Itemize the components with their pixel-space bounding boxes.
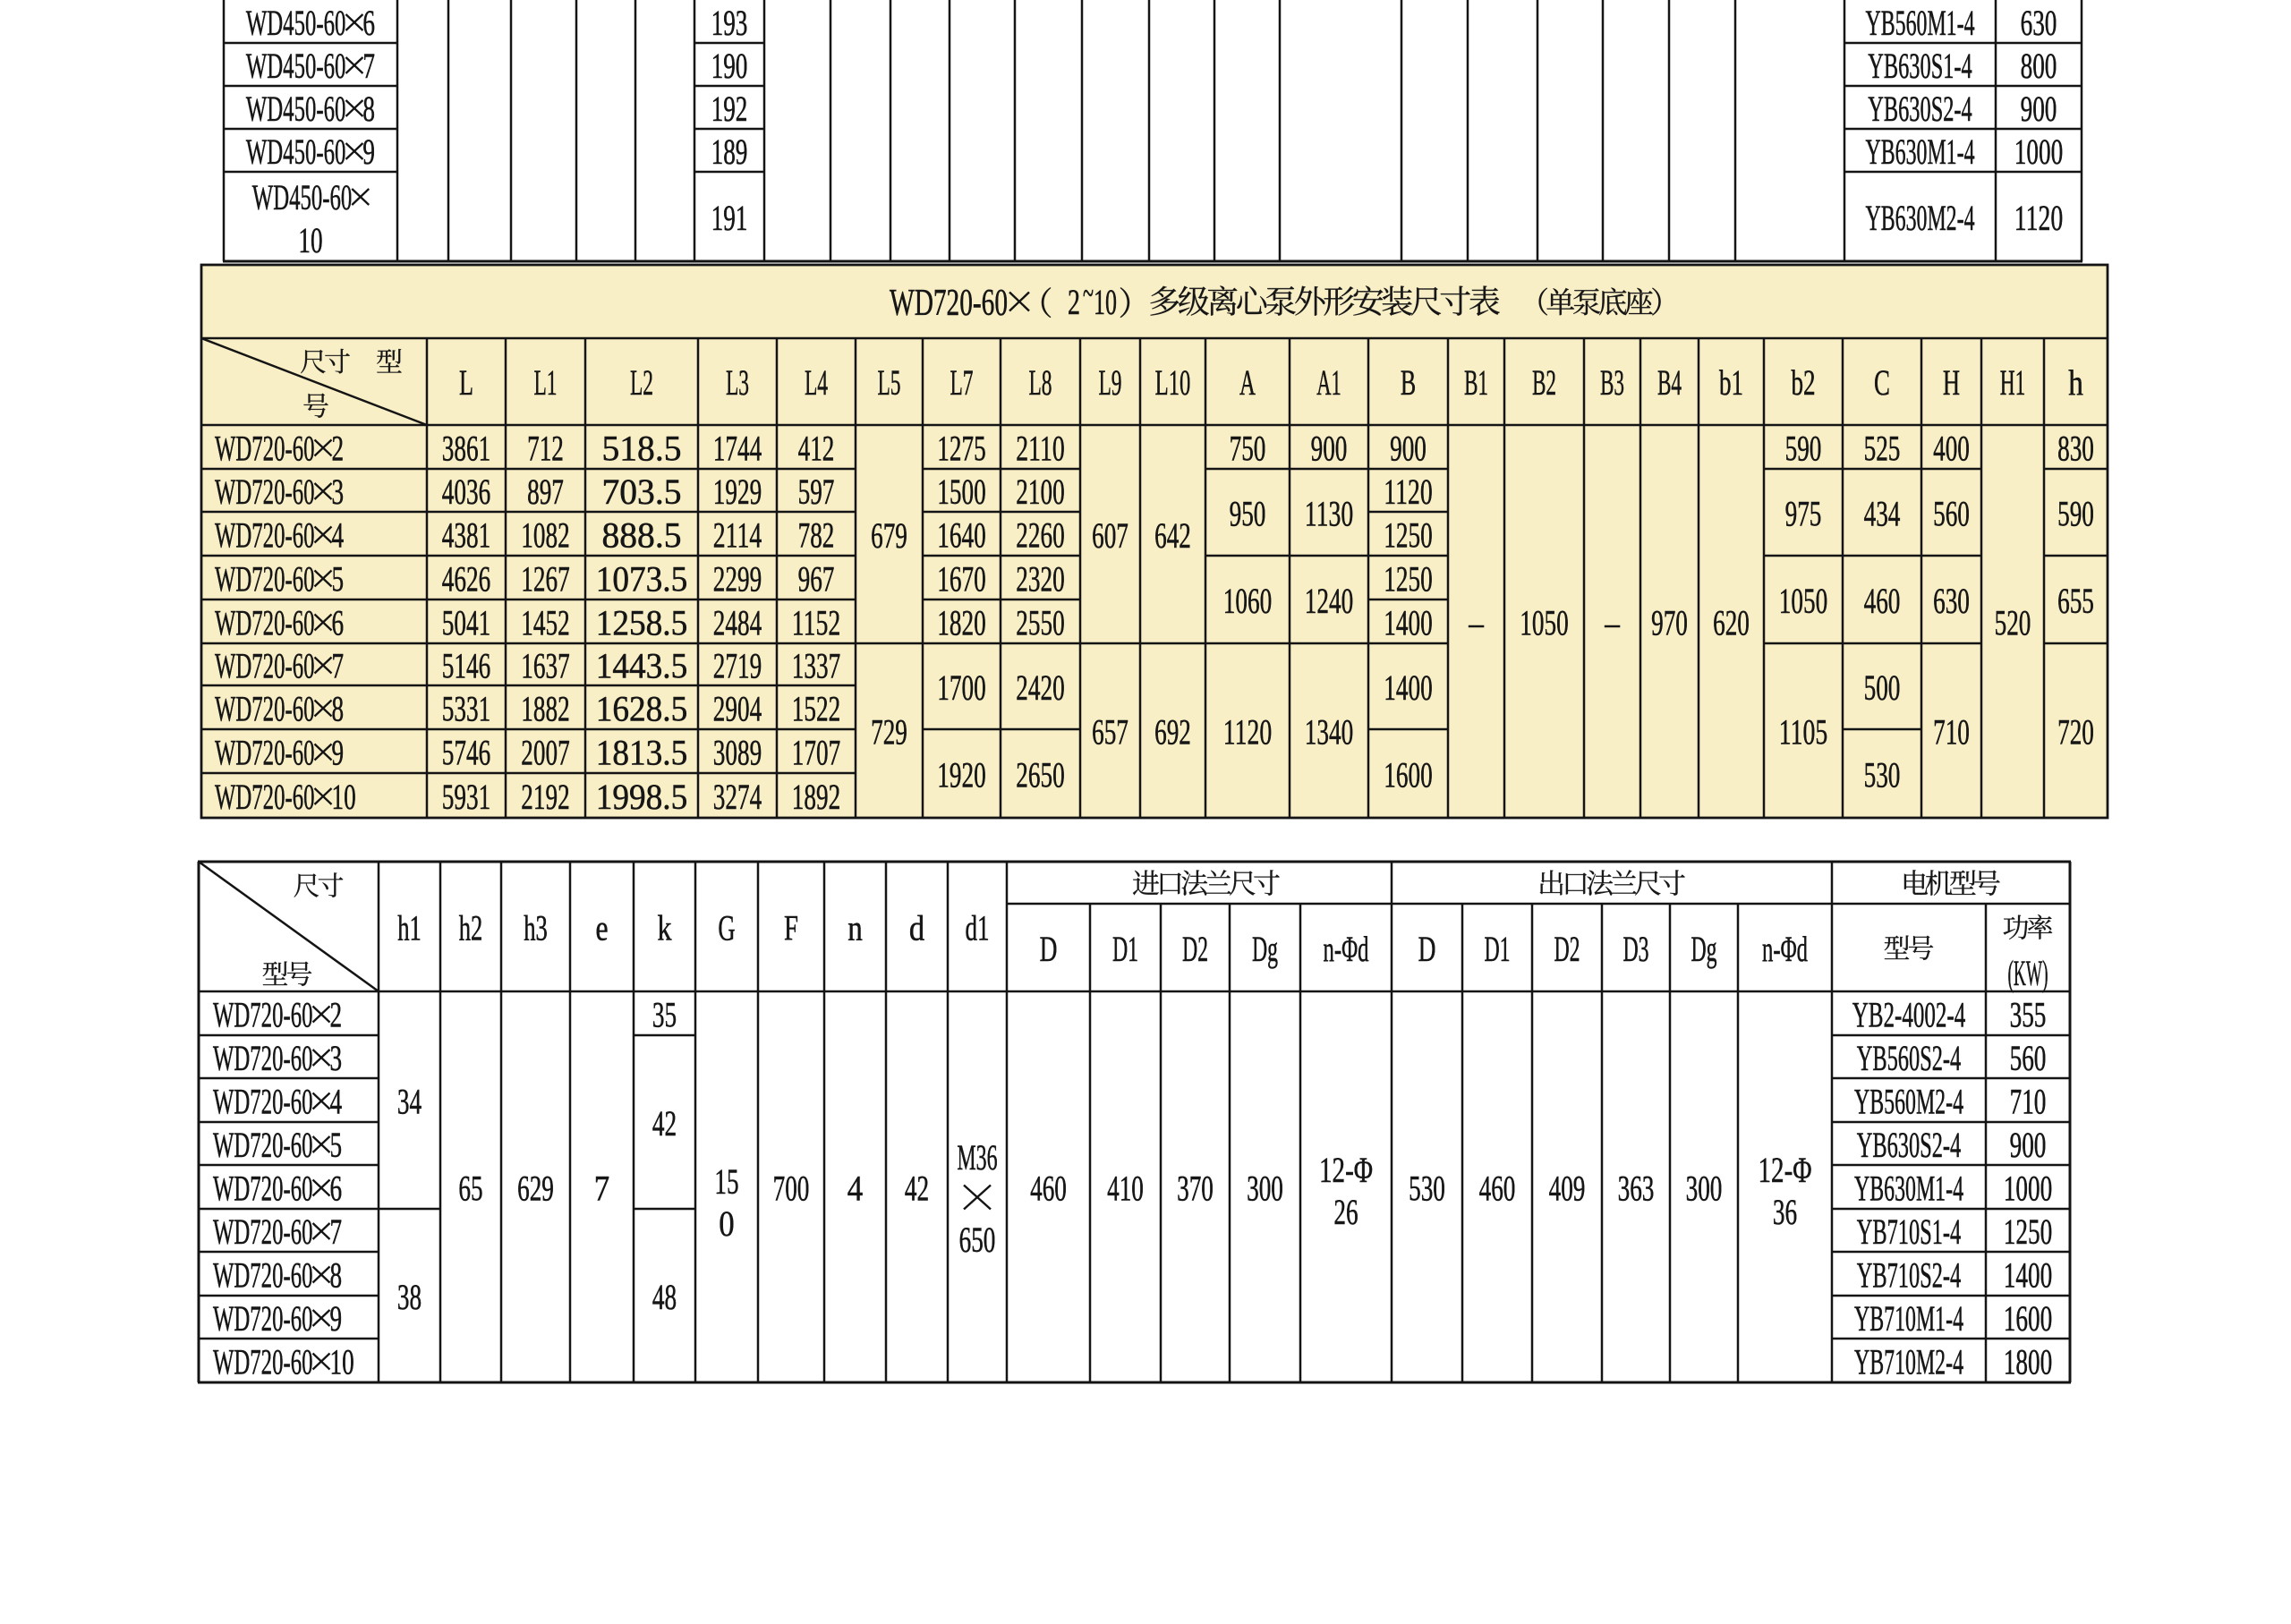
svg-text:4626: 4626 bbox=[442, 559, 490, 599]
svg-text:1813.5: 1813.5 bbox=[596, 733, 688, 773]
svg-text:720: 720 bbox=[2057, 712, 2094, 752]
svg-text:2: 2 bbox=[330, 995, 343, 1035]
svg-text:5041: 5041 bbox=[442, 603, 490, 643]
svg-text:900: 900 bbox=[2021, 89, 2057, 129]
svg-text:193: 193 bbox=[711, 3, 748, 43]
svg-text:b1: b1 bbox=[1719, 362, 1743, 403]
svg-text:1250: 1250 bbox=[1384, 515, 1432, 556]
svg-text:700: 700 bbox=[773, 1169, 810, 1209]
svg-text:1820: 1820 bbox=[937, 603, 985, 643]
svg-text:D2: D2 bbox=[1182, 929, 1208, 969]
svg-text:B4: B4 bbox=[1657, 362, 1682, 403]
svg-text:2: 2 bbox=[332, 429, 345, 469]
svg-text:YB710M1-4: YB710M1-4 bbox=[1854, 1298, 1963, 1339]
svg-text:655: 655 bbox=[2057, 581, 2094, 621]
svg-text:657: 657 bbox=[1092, 712, 1128, 752]
svg-text:1275: 1275 bbox=[937, 429, 985, 469]
svg-text:950: 950 bbox=[1230, 494, 1266, 534]
svg-text:4: 4 bbox=[330, 1082, 343, 1122]
svg-text:D1: D1 bbox=[1484, 929, 1510, 969]
svg-text:n: n bbox=[847, 908, 863, 948]
svg-text:M36: M36 bbox=[957, 1137, 997, 1178]
svg-text:L9: L9 bbox=[1098, 362, 1121, 403]
svg-text:e: e bbox=[595, 908, 608, 948]
svg-text:2484: 2484 bbox=[713, 603, 762, 643]
svg-text:300: 300 bbox=[1247, 1169, 1283, 1209]
svg-text:12-Φ: 12-Φ bbox=[1319, 1150, 1373, 1190]
svg-text:3089: 3089 bbox=[713, 733, 762, 773]
svg-text:1800: 1800 bbox=[2004, 1342, 2052, 1382]
svg-text:400: 400 bbox=[1933, 429, 1970, 469]
svg-text:YB560S2-4: YB560S2-4 bbox=[1857, 1038, 1962, 1078]
svg-text:WD720-60: WD720-60 bbox=[213, 995, 313, 1035]
svg-text:607: 607 bbox=[1092, 515, 1128, 556]
svg-text:650: 650 bbox=[959, 1220, 996, 1260]
svg-text:1073.5: 1073.5 bbox=[596, 559, 688, 599]
svg-text:15: 15 bbox=[714, 1161, 738, 1202]
svg-text:L: L bbox=[459, 362, 473, 403]
svg-text:Dg: Dg bbox=[1691, 929, 1717, 969]
svg-text:WD720-60: WD720-60 bbox=[213, 1298, 313, 1339]
svg-text:L4: L4 bbox=[805, 362, 828, 403]
svg-text:191: 191 bbox=[711, 198, 748, 238]
svg-text:460: 460 bbox=[1030, 1169, 1067, 1209]
svg-text:1400: 1400 bbox=[2004, 1255, 2052, 1296]
svg-text:370: 370 bbox=[1177, 1169, 1214, 1209]
svg-text:1443.5: 1443.5 bbox=[596, 646, 688, 686]
svg-text:1120: 1120 bbox=[2014, 198, 2063, 238]
svg-text:k: k bbox=[658, 908, 672, 948]
svg-text:710: 710 bbox=[1933, 712, 1970, 752]
svg-text:897: 897 bbox=[527, 472, 564, 512]
svg-text:1744: 1744 bbox=[713, 429, 762, 469]
svg-text:460: 460 bbox=[1864, 581, 1901, 621]
svg-text:42: 42 bbox=[905, 1169, 929, 1209]
svg-text:1250: 1250 bbox=[2004, 1212, 2052, 1252]
svg-text:0: 0 bbox=[719, 1203, 734, 1244]
svg-text:409: 409 bbox=[1549, 1169, 1586, 1209]
svg-text:WD720-60: WD720-60 bbox=[213, 1169, 313, 1209]
svg-text:967: 967 bbox=[798, 559, 835, 599]
svg-text:2320: 2320 bbox=[1016, 559, 1064, 599]
svg-text:1400: 1400 bbox=[1384, 603, 1432, 643]
svg-text:7: 7 bbox=[362, 46, 375, 86]
svg-text:YB710S1-4: YB710S1-4 bbox=[1857, 1212, 1962, 1252]
svg-text:2114: 2114 bbox=[713, 515, 762, 556]
svg-text:h1: h1 bbox=[397, 908, 422, 948]
svg-text:WD720-60: WD720-60 bbox=[213, 1082, 313, 1122]
svg-text:900: 900 bbox=[2010, 1125, 2047, 1165]
svg-text:B3: B3 bbox=[1600, 362, 1624, 403]
svg-text:WD720-60: WD720-60 bbox=[215, 689, 315, 729]
svg-text:65: 65 bbox=[458, 1169, 482, 1209]
svg-text:525: 525 bbox=[1864, 429, 1901, 469]
svg-text:888.5: 888.5 bbox=[602, 515, 682, 556]
svg-text:3861: 3861 bbox=[442, 429, 490, 469]
svg-text:YB630S1-4: YB630S1-4 bbox=[1868, 46, 1972, 86]
svg-text:3: 3 bbox=[332, 472, 345, 512]
svg-text:L10: L10 bbox=[1155, 362, 1191, 403]
svg-text:YB630M2-4: YB630M2-4 bbox=[1866, 198, 1975, 238]
svg-text:YB2-4002-4: YB2-4002-4 bbox=[1852, 995, 1966, 1035]
svg-text:1628.5: 1628.5 bbox=[596, 689, 688, 729]
svg-text:597: 597 bbox=[798, 472, 835, 512]
svg-text:900: 900 bbox=[1390, 429, 1427, 469]
svg-text:WD720-60: WD720-60 bbox=[890, 283, 1008, 324]
svg-text:YB560M2-4: YB560M2-4 bbox=[1854, 1082, 1963, 1122]
svg-text:WD720-60: WD720-60 bbox=[213, 1125, 313, 1165]
svg-text:YB630M1-4: YB630M1-4 bbox=[1866, 132, 1975, 172]
svg-text:1105: 1105 bbox=[1779, 712, 1827, 752]
svg-text:1400: 1400 bbox=[1384, 667, 1432, 708]
svg-text:4: 4 bbox=[847, 1169, 863, 1209]
svg-text:WD720-60: WD720-60 bbox=[215, 429, 315, 469]
svg-text:520: 520 bbox=[1995, 603, 2031, 643]
svg-text:1892: 1892 bbox=[792, 777, 840, 817]
svg-text:5331: 5331 bbox=[442, 689, 490, 729]
svg-text:C: C bbox=[1874, 362, 1890, 403]
svg-text:D2: D2 bbox=[1554, 929, 1580, 969]
svg-text:D1: D1 bbox=[1112, 929, 1138, 969]
svg-text:D3: D3 bbox=[1622, 929, 1648, 969]
svg-text:530: 530 bbox=[1864, 755, 1901, 795]
svg-text:1600: 1600 bbox=[1384, 755, 1432, 795]
svg-text:35: 35 bbox=[652, 995, 677, 1035]
svg-text:1120: 1120 bbox=[1223, 712, 1272, 752]
svg-text:703.5: 703.5 bbox=[602, 472, 682, 512]
svg-text:WD720-60: WD720-60 bbox=[213, 1255, 313, 1296]
svg-text:1050: 1050 bbox=[1779, 581, 1827, 621]
svg-text:WD720-60: WD720-60 bbox=[215, 559, 315, 599]
svg-text:YB630S2-4: YB630S2-4 bbox=[1857, 1125, 1962, 1165]
svg-text:B2: B2 bbox=[1532, 362, 1556, 403]
svg-text:1267: 1267 bbox=[521, 559, 569, 599]
svg-text:729: 729 bbox=[871, 712, 907, 752]
svg-text:42: 42 bbox=[652, 1103, 677, 1144]
svg-text:300: 300 bbox=[1686, 1169, 1723, 1209]
svg-text:d: d bbox=[909, 908, 924, 948]
svg-text:b2: b2 bbox=[1791, 362, 1815, 403]
svg-text:D: D bbox=[1418, 929, 1436, 969]
svg-text:h2: h2 bbox=[459, 908, 483, 948]
svg-text:L8: L8 bbox=[1028, 362, 1052, 403]
svg-text:630: 630 bbox=[2021, 3, 2057, 43]
svg-text:1640: 1640 bbox=[937, 515, 985, 556]
svg-text:560: 560 bbox=[1933, 494, 1970, 534]
svg-text:A: A bbox=[1239, 362, 1256, 403]
svg-text:4036: 4036 bbox=[442, 472, 490, 512]
svg-text:WD720-60: WD720-60 bbox=[215, 777, 315, 817]
svg-text:9: 9 bbox=[330, 1298, 343, 1339]
svg-text:1050: 1050 bbox=[1520, 603, 1568, 643]
svg-text:9: 9 bbox=[332, 733, 345, 773]
svg-text:692: 692 bbox=[1154, 712, 1191, 752]
svg-text:750: 750 bbox=[1230, 429, 1266, 469]
svg-text:34: 34 bbox=[397, 1082, 422, 1122]
svg-text:8: 8 bbox=[332, 689, 345, 729]
svg-text:2904: 2904 bbox=[713, 689, 762, 729]
svg-text:1920: 1920 bbox=[937, 755, 985, 795]
svg-text:1060: 1060 bbox=[1223, 581, 1272, 621]
svg-text:5931: 5931 bbox=[442, 777, 490, 817]
svg-text:4: 4 bbox=[332, 515, 345, 556]
svg-text:590: 590 bbox=[1785, 429, 1822, 469]
svg-text:G: G bbox=[718, 908, 735, 948]
svg-text:n-Φd: n-Φd bbox=[1762, 929, 1808, 969]
svg-text:1250: 1250 bbox=[1384, 559, 1432, 599]
svg-text:B: B bbox=[1401, 362, 1416, 403]
svg-text:2: 2 bbox=[1068, 282, 1080, 322]
svg-text:h3: h3 bbox=[524, 908, 548, 948]
svg-text:D: D bbox=[1040, 929, 1058, 969]
svg-text:900: 900 bbox=[1311, 429, 1348, 469]
svg-text:7: 7 bbox=[332, 646, 345, 686]
svg-text:2719: 2719 bbox=[713, 646, 762, 686]
svg-text:2100: 2100 bbox=[1016, 472, 1064, 512]
svg-text:460: 460 bbox=[1479, 1169, 1516, 1209]
svg-text:5146: 5146 bbox=[442, 646, 490, 686]
svg-text:10: 10 bbox=[1094, 282, 1117, 322]
svg-text:5: 5 bbox=[332, 559, 345, 599]
svg-text:WD450-60: WD450-60 bbox=[246, 46, 346, 86]
svg-text:1929: 1929 bbox=[713, 472, 762, 512]
svg-text:6: 6 bbox=[330, 1169, 343, 1209]
svg-text:830: 830 bbox=[2057, 429, 2094, 469]
svg-text:2110: 2110 bbox=[1016, 429, 1064, 469]
svg-text:1700: 1700 bbox=[937, 667, 985, 708]
svg-text:26: 26 bbox=[1333, 1192, 1358, 1232]
svg-text:1000: 1000 bbox=[2014, 132, 2063, 172]
svg-text:190: 190 bbox=[711, 46, 748, 86]
svg-text:WD450-60: WD450-60 bbox=[246, 132, 346, 172]
svg-text:1130: 1130 bbox=[1305, 494, 1353, 534]
svg-text:2299: 2299 bbox=[713, 559, 762, 599]
svg-text:3: 3 bbox=[330, 1038, 343, 1078]
svg-text:4381: 4381 bbox=[442, 515, 490, 556]
svg-text:620: 620 bbox=[1713, 603, 1750, 643]
svg-text:679: 679 bbox=[871, 515, 907, 556]
svg-text:~: ~ bbox=[1083, 273, 1094, 313]
svg-text:WD720-60: WD720-60 bbox=[215, 603, 315, 643]
svg-text:WD720-60: WD720-60 bbox=[213, 1342, 313, 1382]
svg-text:10: 10 bbox=[332, 777, 356, 817]
svg-text:1152: 1152 bbox=[792, 603, 840, 643]
svg-text:1337: 1337 bbox=[792, 646, 840, 686]
svg-text:YB710M2-4: YB710M2-4 bbox=[1854, 1342, 1963, 1382]
svg-text:1998.5: 1998.5 bbox=[596, 777, 688, 817]
svg-text:6: 6 bbox=[332, 603, 345, 643]
svg-text:WD450-60: WD450-60 bbox=[246, 89, 346, 129]
svg-text:A1: A1 bbox=[1316, 362, 1341, 403]
svg-text:1707: 1707 bbox=[792, 733, 840, 773]
svg-text:L3: L3 bbox=[726, 362, 749, 403]
svg-text:629: 629 bbox=[517, 1169, 554, 1209]
svg-text:(KW): (KW) bbox=[2008, 953, 2048, 993]
svg-text:WD720-60: WD720-60 bbox=[215, 733, 315, 773]
svg-text:192: 192 bbox=[711, 89, 748, 129]
svg-text:1340: 1340 bbox=[1305, 712, 1353, 752]
svg-text:10: 10 bbox=[330, 1342, 354, 1382]
svg-text:590: 590 bbox=[2057, 494, 2094, 534]
svg-text:410: 410 bbox=[1107, 1169, 1144, 1209]
svg-text:355: 355 bbox=[2010, 995, 2047, 1035]
svg-text:YB630S2-4: YB630S2-4 bbox=[1868, 89, 1972, 129]
svg-text:L5: L5 bbox=[877, 362, 900, 403]
svg-text:7: 7 bbox=[594, 1169, 609, 1209]
svg-text:1082: 1082 bbox=[521, 515, 569, 556]
svg-text:2550: 2550 bbox=[1016, 603, 1064, 643]
svg-text:2007: 2007 bbox=[521, 733, 569, 773]
svg-text:YB560M1-4: YB560M1-4 bbox=[1866, 3, 1975, 43]
svg-text:3274: 3274 bbox=[713, 777, 762, 817]
svg-text:2192: 2192 bbox=[521, 777, 569, 817]
svg-text:WD720-60: WD720-60 bbox=[215, 515, 315, 556]
svg-text:H1: H1 bbox=[2000, 362, 2026, 403]
svg-text:560: 560 bbox=[2010, 1038, 2047, 1078]
svg-text:530: 530 bbox=[1409, 1169, 1445, 1209]
svg-text:H: H bbox=[1943, 362, 1960, 403]
svg-text:YB710S2-4: YB710S2-4 bbox=[1857, 1255, 1962, 1296]
svg-text:12-Φ: 12-Φ bbox=[1759, 1150, 1812, 1190]
svg-text:1882: 1882 bbox=[521, 689, 569, 729]
svg-text:36: 36 bbox=[1773, 1192, 1797, 1232]
svg-text:412: 412 bbox=[798, 429, 835, 469]
svg-text:6: 6 bbox=[362, 3, 375, 43]
svg-text:2260: 2260 bbox=[1016, 515, 1064, 556]
svg-text:2650: 2650 bbox=[1016, 755, 1064, 795]
svg-text:642: 642 bbox=[1154, 515, 1191, 556]
svg-text:B1: B1 bbox=[1464, 362, 1488, 403]
svg-text:10: 10 bbox=[298, 220, 322, 260]
svg-text:d1: d1 bbox=[965, 908, 989, 948]
svg-text:L7: L7 bbox=[950, 362, 973, 403]
svg-text:1240: 1240 bbox=[1305, 581, 1353, 621]
svg-text:n-Φd: n-Φd bbox=[1324, 929, 1369, 969]
svg-text:WD720-60: WD720-60 bbox=[215, 472, 315, 512]
svg-text:–: – bbox=[1604, 603, 1620, 643]
svg-text:712: 712 bbox=[527, 429, 564, 469]
svg-text:8: 8 bbox=[330, 1255, 343, 1296]
svg-text:YB630M1-4: YB630M1-4 bbox=[1854, 1169, 1963, 1209]
svg-text:h: h bbox=[2068, 362, 2083, 403]
svg-text:WD450-60: WD450-60 bbox=[246, 3, 346, 43]
svg-text:1637: 1637 bbox=[521, 646, 569, 686]
svg-text:L2: L2 bbox=[630, 362, 653, 403]
svg-text:Dg: Dg bbox=[1252, 929, 1278, 969]
svg-text:1120: 1120 bbox=[1384, 472, 1432, 512]
svg-text:434: 434 bbox=[1864, 494, 1901, 534]
svg-text:5: 5 bbox=[330, 1125, 343, 1165]
svg-text:WD720-60: WD720-60 bbox=[213, 1212, 313, 1252]
svg-text:7: 7 bbox=[330, 1212, 343, 1252]
svg-text:48: 48 bbox=[652, 1277, 677, 1317]
svg-text:1670: 1670 bbox=[937, 559, 985, 599]
svg-text:8: 8 bbox=[362, 89, 375, 129]
svg-text:WD720-60: WD720-60 bbox=[215, 646, 315, 686]
svg-text:WD720-60: WD720-60 bbox=[213, 1038, 313, 1078]
svg-text:–: – bbox=[1468, 603, 1484, 643]
svg-text:518.5: 518.5 bbox=[602, 429, 682, 469]
svg-text:500: 500 bbox=[1864, 667, 1901, 708]
svg-text:189: 189 bbox=[711, 132, 748, 172]
svg-text:5746: 5746 bbox=[442, 733, 490, 773]
svg-text:2420: 2420 bbox=[1016, 667, 1064, 708]
svg-text:1500: 1500 bbox=[937, 472, 985, 512]
svg-text:F: F bbox=[784, 908, 798, 948]
svg-text:363: 363 bbox=[1618, 1169, 1655, 1209]
svg-text:9: 9 bbox=[362, 132, 375, 172]
svg-text:1600: 1600 bbox=[2004, 1298, 2052, 1339]
svg-text:800: 800 bbox=[2021, 46, 2057, 86]
svg-text:38: 38 bbox=[397, 1277, 422, 1317]
svg-text:1258.5: 1258.5 bbox=[596, 603, 688, 643]
svg-text:1452: 1452 bbox=[521, 603, 569, 643]
svg-text:970: 970 bbox=[1651, 603, 1688, 643]
svg-text:710: 710 bbox=[2010, 1082, 2047, 1122]
svg-text:1000: 1000 bbox=[2004, 1169, 2052, 1209]
svg-text:782: 782 bbox=[798, 515, 835, 556]
svg-text:1522: 1522 bbox=[792, 689, 840, 729]
svg-text:975: 975 bbox=[1785, 494, 1822, 534]
svg-text:630: 630 bbox=[1933, 581, 1970, 621]
svg-text:WD450-60: WD450-60 bbox=[252, 177, 353, 217]
svg-text:L1: L1 bbox=[533, 362, 557, 403]
